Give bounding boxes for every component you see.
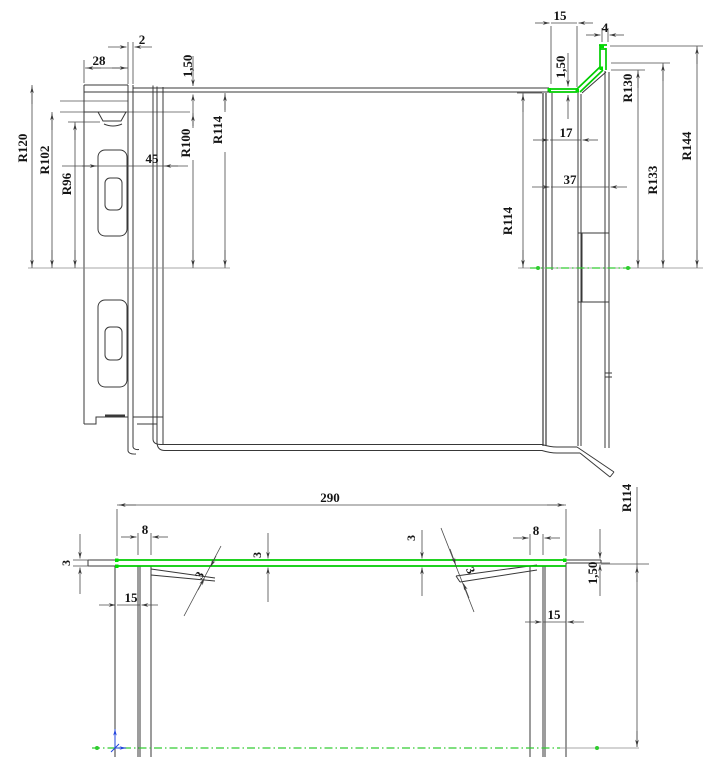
cad-drawing-page: 2 28 1,50 R120 [0,0,717,780]
dim-label-r114-left: R114 [210,115,225,144]
dim-8-left: 8 [121,522,168,555]
dim-label-r120: R120 [15,134,30,163]
dim-28: 28 [84,53,128,83]
dim-3-mid-left: 3 [250,533,268,602]
dim-2: 2 [108,32,152,84]
dim-label-37: 37 [564,172,578,187]
dim-label-45: 45 [146,151,160,166]
cad-drawing-canvas[interactable]: 2 28 1,50 R120 [0,0,717,780]
dim-3-left: 3 [59,534,90,594]
edge-grip[interactable] [115,559,119,563]
dim-label-2: 2 [139,32,146,47]
dim-45: 45 [62,151,188,166]
edge-grip[interactable] [600,67,604,71]
dim-label-r114-bottom: R114 [619,483,634,512]
dim-label-4: 4 [602,20,609,35]
dim-label-r144: R144 [679,131,694,160]
dim-r114-bottom: R114 [601,483,649,747]
dim-15-bottom-left: 15 [99,590,158,605]
part-geometry-top [60,71,614,477]
edge-grip[interactable] [601,45,605,49]
dim-label-r130: R130 [620,74,635,103]
dim-label-r96: R96 [59,172,74,195]
dim-r114-left: R114 [210,93,225,268]
dim-label-1-50-right: 1,50 [553,56,568,79]
dim-label-r102: R102 [37,146,52,175]
dim-label-15-bottom-right: 15 [548,607,562,622]
dim-r96: R96 [59,122,100,268]
dim-290: 290 [117,490,566,556]
dim-label-r133: R133 [645,165,660,194]
edge-grip[interactable] [548,88,552,92]
dim-r130: R130 [611,70,645,268]
dim-1-50-right: 1,50 [553,53,568,119]
dim-label-1-50-bottom: 1,50 [585,562,600,585]
dim-1-50-left: 1,50 [180,55,195,117]
dim-3-mid-right: 3 [404,530,422,596]
dim-label-15-bottom-left: 15 [125,590,139,605]
dim-label-15-top: 15 [554,8,568,23]
dim-3-slant-left: 3 [184,546,221,616]
dim-label-r100: R100 [178,129,193,158]
highlighted-profile-bottom[interactable] [115,559,567,569]
centerline-bottom [92,746,639,750]
dim-label-1-50-left: 1,50 [180,55,195,78]
dim-label-8-right: 8 [533,523,540,538]
dim-label-17: 17 [560,125,574,140]
top-view: 2 28 1,50 R120 [15,8,703,477]
dim-label-8-left: 8 [142,522,149,537]
dim-label-3-left: 3 [59,560,73,566]
dimensions-bottom: 290 8 8 3 3 [59,483,649,747]
centerline-top [28,266,703,270]
dim-label-28: 28 [93,53,107,68]
dim-label-290: 290 [320,490,340,505]
part-geometry-bottom [88,560,601,757]
dim-r100: R100 [178,113,193,268]
dim-label-3-mid-right: 3 [404,535,418,541]
bottom-view: 290 8 8 3 3 [59,483,649,757]
dim-r114-mid: R114 [500,93,542,268]
dim-label-r114-mid: R114 [500,206,515,235]
dim-r120: R120 [15,85,32,268]
dim-1-50-bottom: 1,50 [585,529,610,596]
dim-r102: R102 [37,112,52,268]
edge-grip[interactable] [115,565,119,569]
dim-8-right: 8 [513,523,560,555]
dim-3-slant-right: 3 [441,528,478,612]
edge-grip[interactable] [576,89,580,93]
dim-label-3-mid-left: 3 [250,552,264,558]
dim-15-bottom-right: 15 [525,607,584,622]
edge-grip[interactable] [563,559,567,563]
